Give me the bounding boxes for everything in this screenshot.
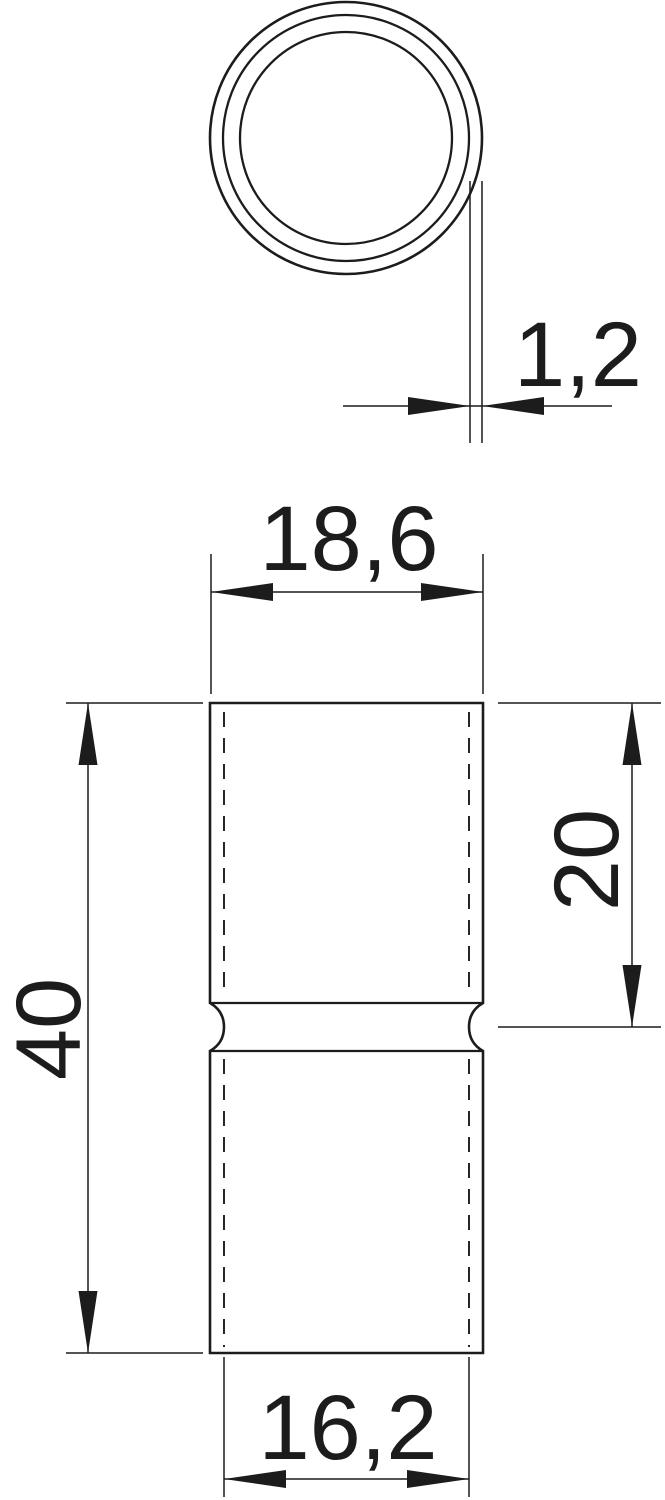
arrowhead-up-icon	[623, 703, 642, 765]
technical-drawing-canvas: 1,2 18,6 40 20	[0, 0, 665, 1500]
sleeve-outline	[210, 703, 483, 1353]
arrowhead-down-icon	[79, 1291, 98, 1353]
arrowhead-down-icon	[623, 965, 642, 1027]
dim-text-outer-diameter: 18,6	[259, 488, 438, 590]
dimension-outer-diameter: 18,6	[211, 488, 483, 694]
dimension-insertion-depth: 20	[498, 703, 661, 1027]
dimension-inner-diameter: 16,2	[224, 1357, 469, 1497]
dim-text-insertion-depth: 20	[536, 809, 638, 911]
side-view-elevation	[210, 703, 483, 1353]
dimension-overall-length: 40	[0, 703, 203, 1353]
technical-drawing: 1,2 18,6 40 20	[0, 0, 665, 1500]
arrowhead-up-icon	[79, 703, 98, 765]
dimension-wall-thickness: 1,2	[343, 181, 642, 443]
arrowhead-right-icon	[408, 397, 470, 415]
dim-text-overall-length: 40	[0, 978, 100, 1080]
dim-text-wall-thickness: 1,2	[514, 304, 642, 406]
dim-text-inner-diameter: 16,2	[258, 1377, 437, 1479]
inner-circle	[240, 32, 452, 244]
outer-circle	[210, 2, 482, 274]
middle-circle	[223, 15, 469, 261]
top-view-cross-section	[210, 2, 482, 274]
